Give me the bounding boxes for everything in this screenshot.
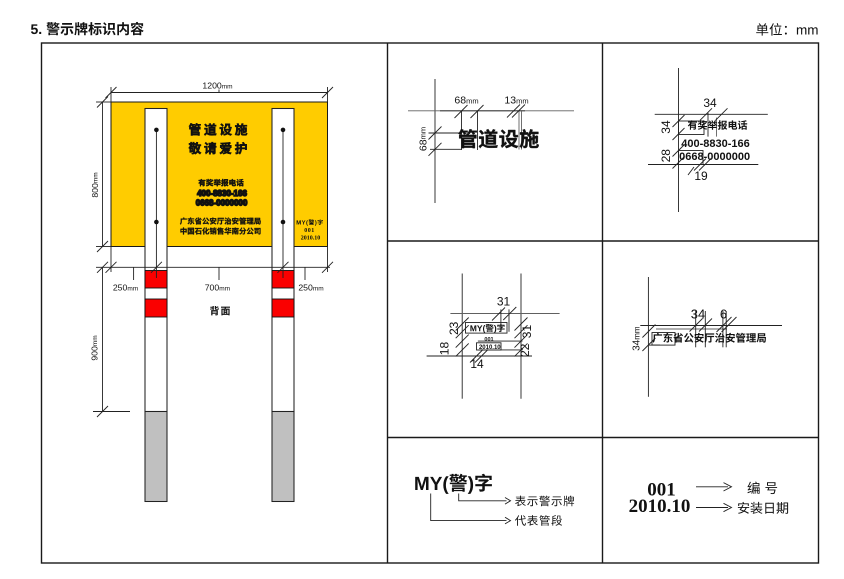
svg-text:400-8830-166: 400-8830-166 <box>681 138 750 150</box>
svg-text:34: 34 <box>659 120 673 134</box>
svg-text:2010.10: 2010.10 <box>301 236 321 242</box>
svg-text:31: 31 <box>520 325 534 339</box>
svg-text:1200mm: 1200mm <box>202 81 232 91</box>
svg-text:19: 19 <box>694 169 708 183</box>
svg-text:2010.10: 2010.10 <box>629 496 691 517</box>
svg-text:400-8830-166: 400-8830-166 <box>197 189 247 198</box>
svg-text:23: 23 <box>447 321 461 335</box>
svg-text:2010.10: 2010.10 <box>479 345 501 351</box>
svg-text:34: 34 <box>703 96 717 110</box>
svg-text:900mm: 900mm <box>89 335 99 360</box>
svg-text:18: 18 <box>438 342 452 356</box>
svg-text:250mm: 250mm <box>113 283 138 293</box>
svg-text:68mm: 68mm <box>454 95 478 107</box>
svg-text:14: 14 <box>470 357 484 371</box>
svg-text:28: 28 <box>659 149 673 163</box>
svg-text:6: 6 <box>720 307 727 322</box>
svg-text:34mm: 34mm <box>632 326 643 351</box>
svg-text:250mm: 250mm <box>298 283 323 293</box>
svg-text:22: 22 <box>518 343 532 357</box>
svg-text:700mm: 700mm <box>205 283 230 293</box>
svg-text:13mm: 13mm <box>504 95 528 107</box>
svg-text:68mm: 68mm <box>417 127 429 151</box>
svg-text:34: 34 <box>691 307 705 322</box>
svg-text:800mm: 800mm <box>90 172 100 197</box>
svg-text:31: 31 <box>497 295 511 309</box>
svg-text:0668-0000000: 0668-0000000 <box>679 151 750 163</box>
svg-text:001: 001 <box>484 337 493 343</box>
svg-text:0668-0000000: 0668-0000000 <box>196 199 248 208</box>
svg-text:001: 001 <box>304 228 315 234</box>
